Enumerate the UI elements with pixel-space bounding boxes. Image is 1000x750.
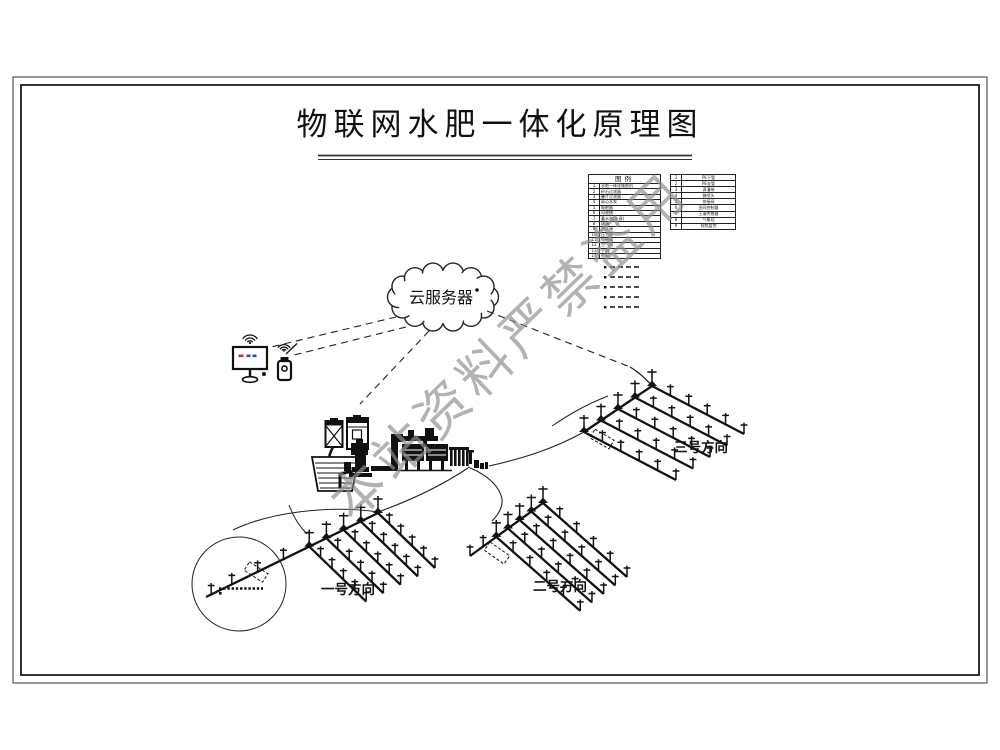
fertilizer-tank-a xyxy=(326,418,343,447)
cloud-dot xyxy=(475,288,479,292)
legend-header: 图例 xyxy=(589,175,661,184)
smartphone-icon xyxy=(278,344,297,381)
legend-table-main: 图例 1 水肥一体化施肥机 2 砂石过滤器 3 叠片过滤器 xyxy=(588,174,661,259)
sand-filter-tanks xyxy=(398,437,452,471)
field-3-label: 三号方向 xyxy=(674,439,728,456)
fertigation-station xyxy=(312,415,488,491)
sprinkler-fields xyxy=(206,369,747,611)
screen-red-mark xyxy=(239,355,244,358)
computer-monitor-icon xyxy=(233,335,267,382)
field-2-label: 二号方向 xyxy=(533,578,587,595)
legend-linetype-samples xyxy=(604,266,641,308)
drawing-border-frame xyxy=(13,77,987,683)
cloud-server-label: 云服务器 xyxy=(409,288,473,307)
legend-row: 9 视频监控 xyxy=(671,223,736,229)
disc-filter-battery xyxy=(449,447,488,469)
legend-table-side: 1 PE干管 2 PE支管 3 滴灌带 4 微喷头 xyxy=(670,174,736,230)
screen-blue-mark xyxy=(247,355,251,358)
wifi-signal-icon xyxy=(243,335,258,344)
drawing-page: 物联网水肥一体化原理图 xyxy=(0,0,1000,750)
screen-blue-mark-2 xyxy=(253,355,257,358)
wifi-signal-icon xyxy=(278,345,290,352)
schematic-canvas: 云服务器 xyxy=(0,0,1000,750)
field-1-label: 一号方向 xyxy=(321,581,375,598)
field-grid xyxy=(579,369,747,480)
title-underline xyxy=(318,156,692,160)
detail-callout-circle xyxy=(192,537,286,631)
legend-row: 14 电脑 xyxy=(589,254,661,259)
